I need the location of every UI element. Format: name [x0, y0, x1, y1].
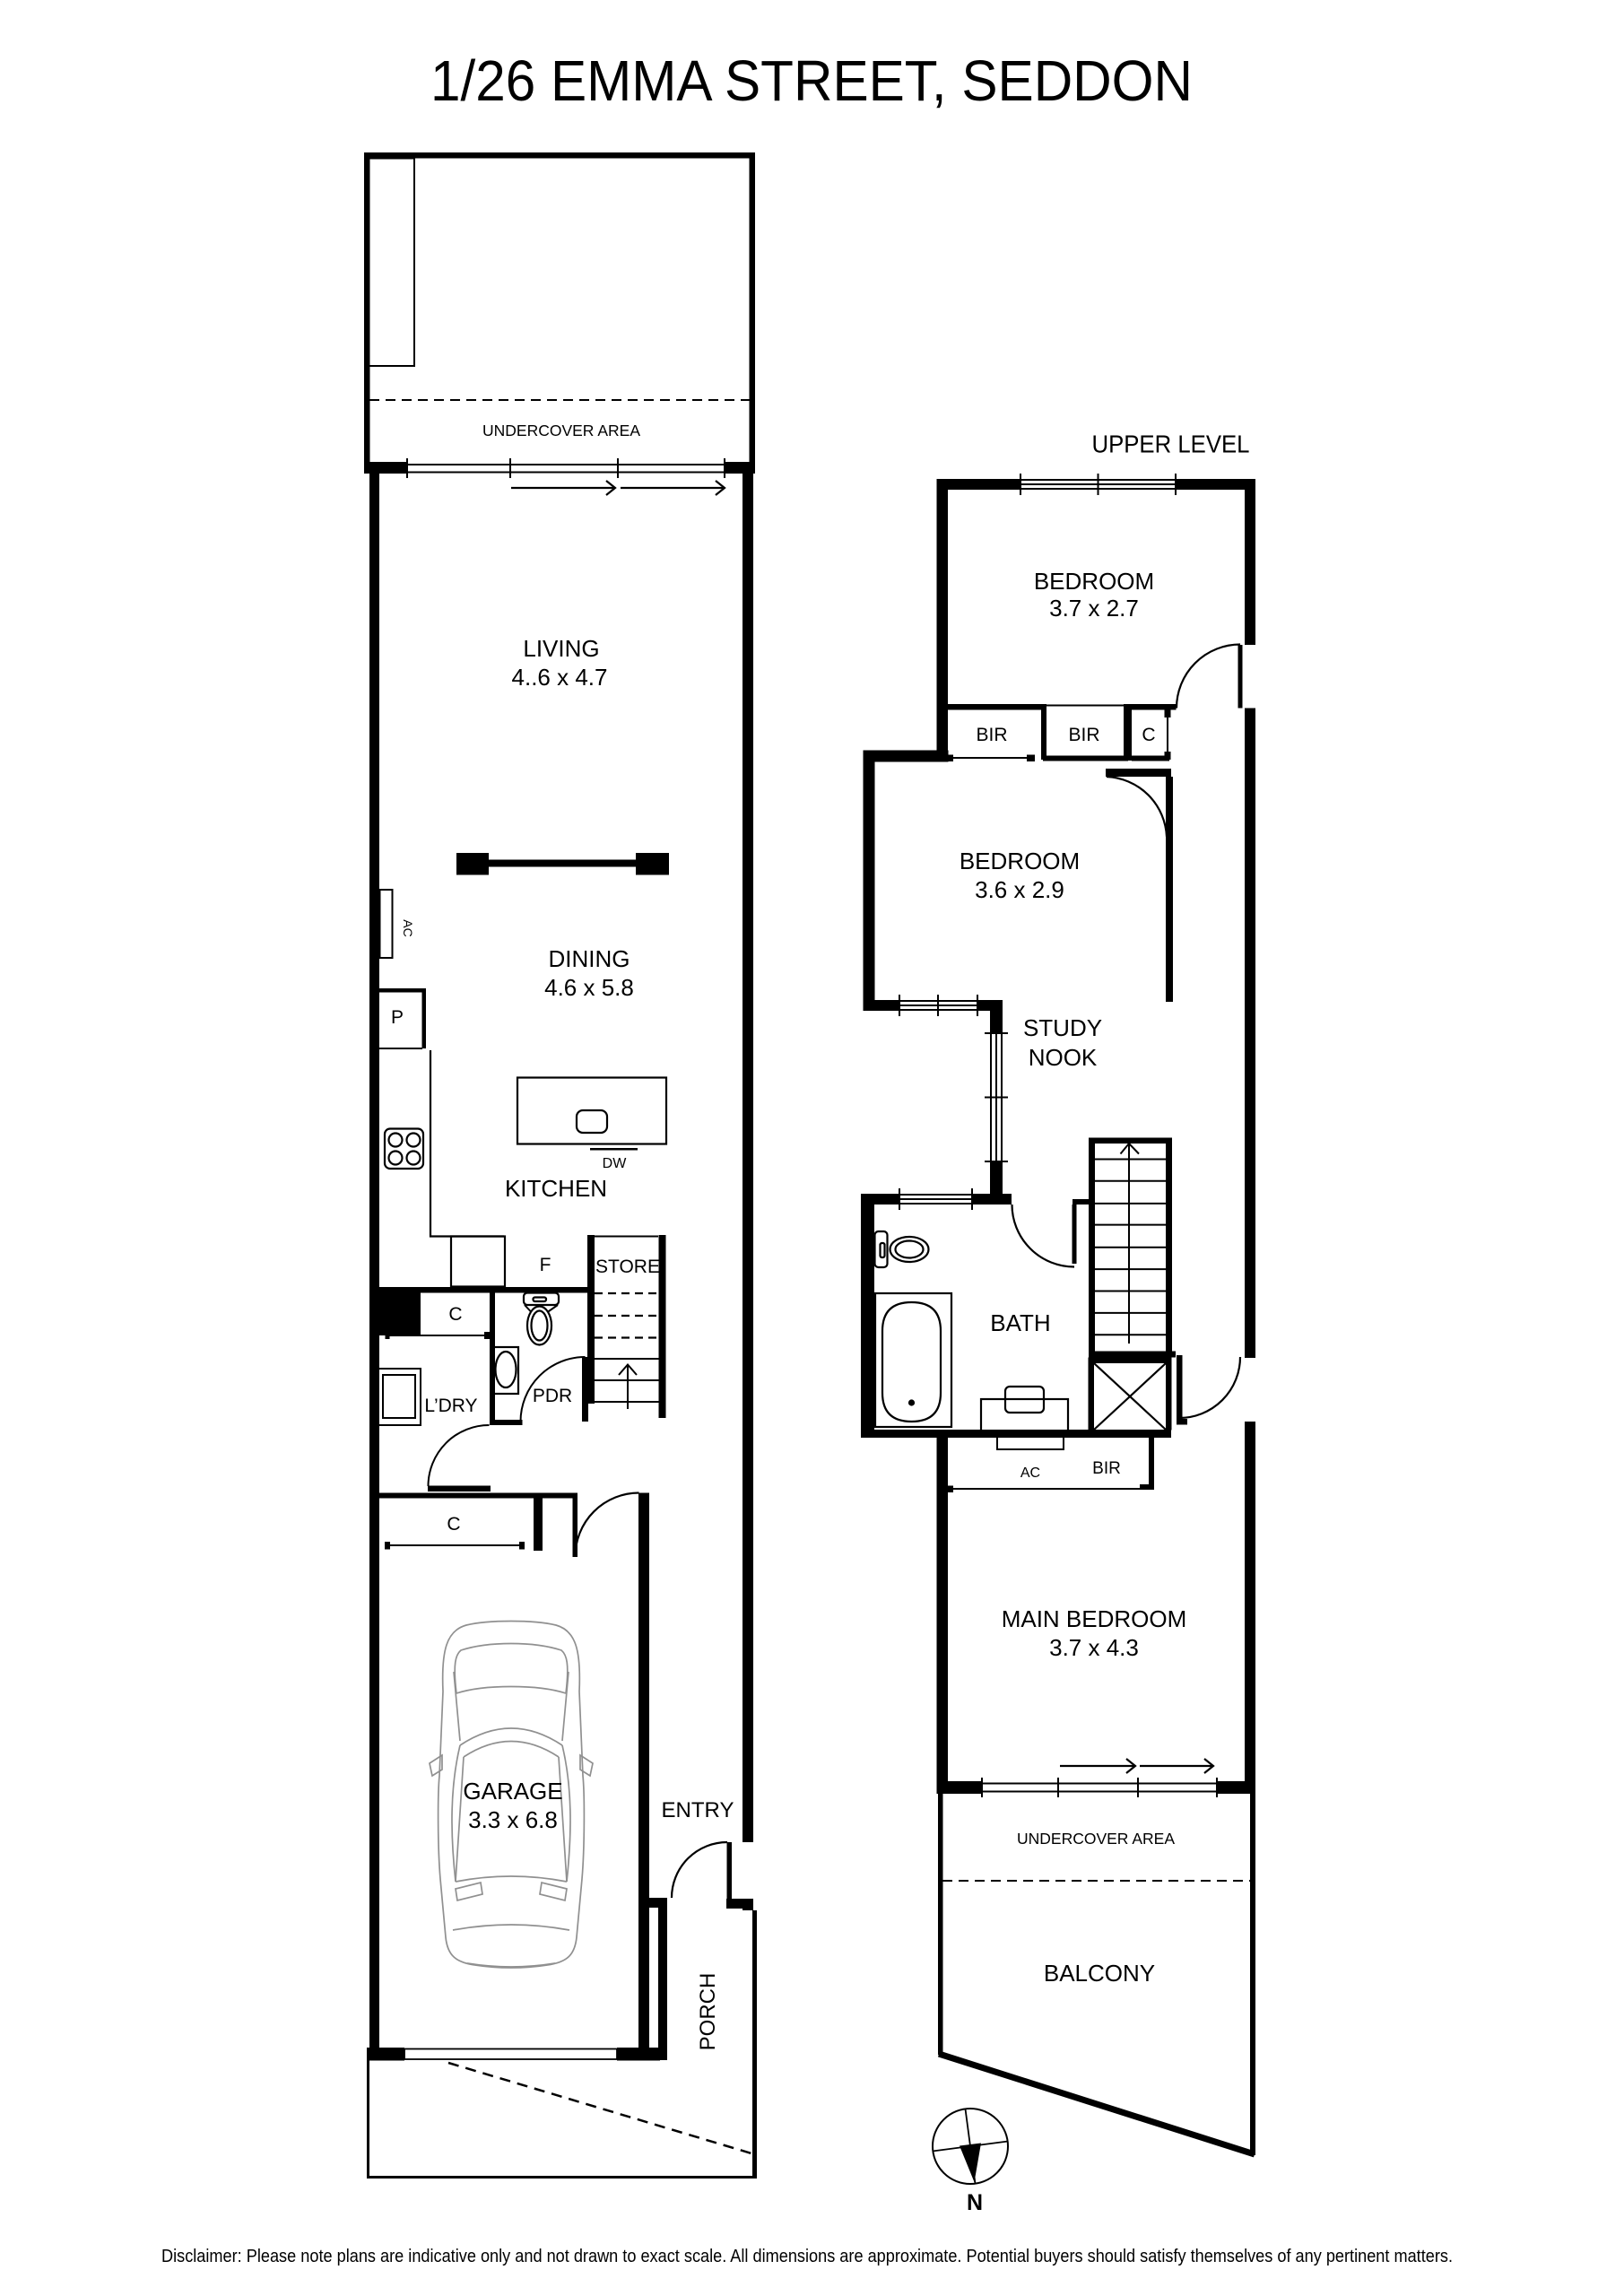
svg-text:KITCHEN: KITCHEN: [505, 1175, 607, 1202]
svg-text:BATH: BATH: [990, 1309, 1050, 1336]
svg-text:BALCONY: BALCONY: [1044, 1960, 1155, 1987]
svg-text:STUDY: STUDY: [1023, 1014, 1102, 1041]
svg-text:UPPER LEVEL: UPPER LEVEL: [1092, 430, 1250, 458]
svg-text:LIVING: LIVING: [523, 635, 599, 662]
svg-text:1/26 EMMA STREET, SEDDON: 1/26 EMMA STREET, SEDDON: [430, 48, 1193, 113]
svg-text:3.7 x 4.3: 3.7 x 4.3: [1049, 1634, 1139, 1661]
svg-text:PDR: PDR: [533, 1386, 572, 1406]
svg-text:DINING: DINING: [549, 945, 630, 972]
svg-text:AC: AC: [1020, 1465, 1040, 1481]
svg-text:4..6 x 4.7: 4..6 x 4.7: [512, 664, 608, 691]
svg-text:3.3 x 6.8: 3.3 x 6.8: [468, 1806, 558, 1833]
svg-text:NOOK: NOOK: [1029, 1044, 1098, 1071]
svg-text:BIR: BIR: [976, 725, 1007, 745]
svg-text:DW: DW: [603, 1156, 628, 1171]
svg-text:ENTRY: ENTRY: [662, 1798, 734, 1822]
svg-text:3.7 x 2.7: 3.7 x 2.7: [1049, 595, 1139, 622]
svg-text:BIR: BIR: [1092, 1459, 1121, 1478]
svg-text:UNDERCOVER AREA: UNDERCOVER AREA: [482, 422, 640, 439]
svg-text:L’DRY: L’DRY: [424, 1396, 477, 1416]
svg-text:Disclaimer: Please note plans: Disclaimer: Please note plans are indica…: [161, 2247, 1453, 2266]
svg-text:C: C: [447, 1514, 460, 1535]
svg-text:AC: AC: [401, 919, 415, 936]
svg-text:3.6 x 2.9: 3.6 x 2.9: [975, 876, 1064, 903]
svg-text:BEDROOM: BEDROOM: [1034, 568, 1154, 595]
svg-text:PORCH: PORCH: [696, 1973, 720, 2051]
svg-text:C: C: [1142, 725, 1155, 745]
svg-text:MAIN BEDROOM: MAIN BEDROOM: [1002, 1605, 1187, 1632]
svg-text:BEDROOM: BEDROOM: [960, 848, 1080, 874]
svg-text:4.6 x 5.8: 4.6 x 5.8: [544, 974, 634, 1001]
svg-text:P: P: [391, 1007, 404, 1028]
svg-text:C: C: [448, 1304, 462, 1325]
svg-text:STORE: STORE: [595, 1257, 660, 1277]
svg-text:BIR: BIR: [1068, 725, 1099, 745]
svg-text:N: N: [967, 2190, 983, 2215]
svg-text:F: F: [540, 1255, 551, 1275]
svg-text:GARAGE: GARAGE: [463, 1778, 562, 1805]
svg-text:UNDERCOVER AREA: UNDERCOVER AREA: [1017, 1830, 1175, 1848]
